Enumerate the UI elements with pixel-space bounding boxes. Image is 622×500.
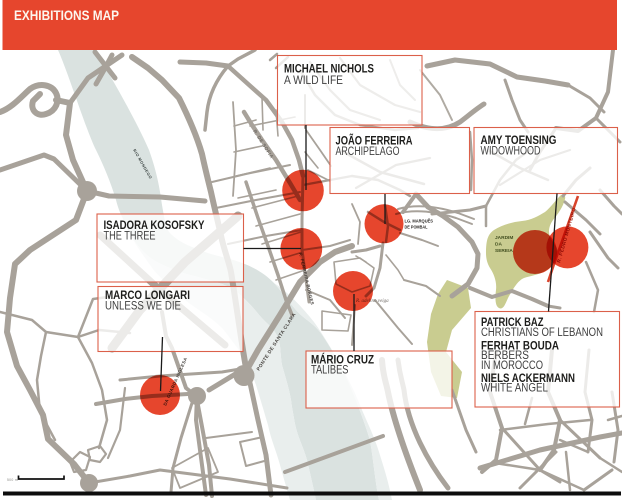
svg-text:LG. MARQUÊS: LG. MARQUÊS <box>405 217 434 224</box>
svg-text:DA: DA <box>495 242 502 248</box>
svg-text:WHITE ANGEL: WHITE ANGEL <box>481 381 548 395</box>
svg-text:A WILD LIFE: A WILD LIFE <box>284 73 343 87</box>
svg-text:JARDIM: JARDIM <box>495 235 513 241</box>
svg-text:TALIBES: TALIBES <box>311 363 349 377</box>
svg-text:SEREIA: SEREIA <box>495 248 513 254</box>
svg-text:DE POMBAL: DE POMBAL <box>405 224 428 229</box>
svg-text:EXHIBITIONS MAP: EXHIBITIONS MAP <box>14 7 119 23</box>
svg-text:WIDOWHOOD: WIDOWHOOD <box>481 144 541 158</box>
svg-text:500 m: 500 m <box>7 478 18 482</box>
svg-text:IN MOROCCO: IN MOROCCO <box>481 358 543 372</box>
svg-text:UNLESS WE DIE: UNLESS WE DIE <box>105 299 181 313</box>
svg-text:ARCHIPELAGO: ARCHIPELAGO <box>336 144 400 158</box>
svg-text:THE THREE: THE THREE <box>104 229 156 243</box>
svg-text:CHRISTIANS OF LEBANON: CHRISTIANS OF LEBANON <box>481 325 603 339</box>
